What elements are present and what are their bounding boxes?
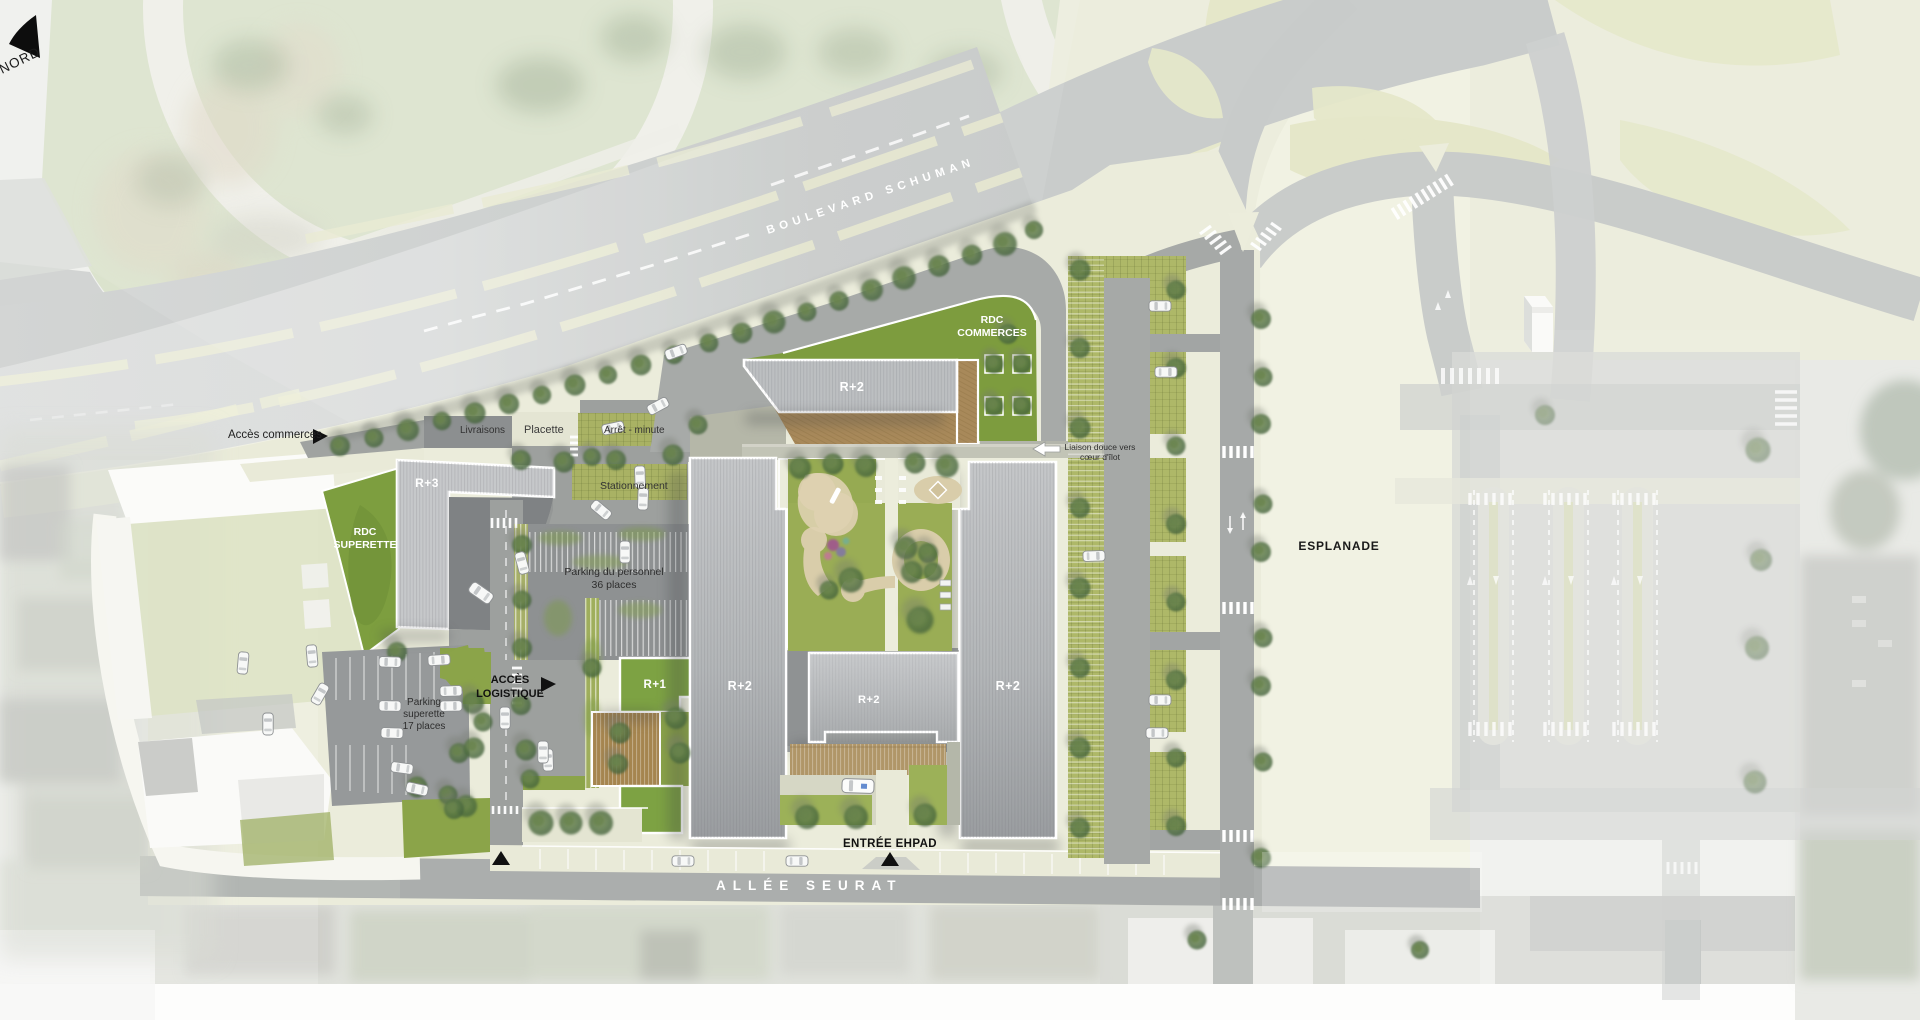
svg-text:ESPLANADE: ESPLANADE <box>1298 539 1379 553</box>
svg-text:R+2: R+2 <box>728 679 753 693</box>
svg-text:R+2: R+2 <box>840 380 865 394</box>
svg-text:Liaison douce vers: Liaison douce vers <box>1065 442 1136 452</box>
svg-text:Parking: Parking <box>407 697 441 708</box>
svg-text:R+2: R+2 <box>996 679 1021 693</box>
svg-text:R+2: R+2 <box>858 694 880 706</box>
svg-text:R+3: R+3 <box>415 476 439 490</box>
svg-text:COMMERCES: COMMERCES <box>957 327 1026 339</box>
svg-text:Livraisons: Livraisons <box>460 425 505 436</box>
svg-text:RDC: RDC <box>981 314 1004 326</box>
svg-text:17 places: 17 places <box>403 721 446 732</box>
svg-text:Placette: Placette <box>524 424 564 436</box>
svg-text:ACCÈS: ACCÈS <box>491 673 530 686</box>
svg-text:ENTRÉE EHPAD: ENTRÉE EHPAD <box>843 837 937 850</box>
svg-text:LOGISTIQUE: LOGISTIQUE <box>476 688 544 700</box>
svg-text:36 places: 36 places <box>592 579 637 591</box>
svg-text:Parking du personnel: Parking du personnel <box>564 566 663 578</box>
svg-text:RDC: RDC <box>354 526 377 538</box>
svg-text:Arrêt - minute: Arrêt - minute <box>604 425 665 436</box>
svg-text:SUPERETTE: SUPERETTE <box>333 539 396 551</box>
svg-text:Accès commerces: Accès commerces <box>228 429 322 441</box>
svg-text:ALLÉE SEURAT: ALLÉE SEURAT <box>716 878 903 893</box>
svg-text:R+1: R+1 <box>644 679 667 691</box>
svg-text:Stationnement: Stationnement <box>600 480 668 492</box>
svg-text:cœur d'îlot: cœur d'îlot <box>1080 452 1121 462</box>
svg-text:superette: superette <box>403 709 445 720</box>
